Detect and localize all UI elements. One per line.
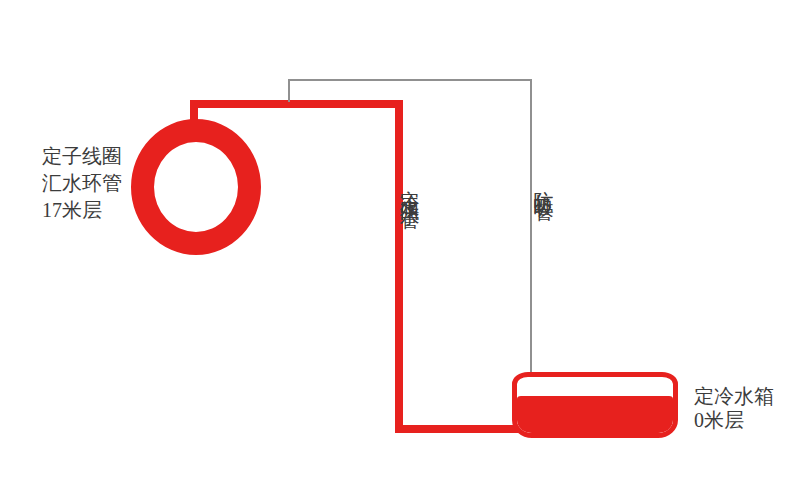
return-pipe-label: 定冷水回水管 [399,174,421,198]
anti-siphon-stub-vertical [288,80,290,102]
cooling-water-diagram: 定子线圈 汇水环管 17米层 定冷水回水管 防虹吸管 定冷水箱 0米层 [0,0,800,500]
anti-siphon-vertical [530,79,532,375]
anti-siphon-horizontal [288,79,532,81]
tank-label-line2: 0米层 [694,408,774,432]
ring-label-line1: 定子线圈 [42,143,122,170]
pipe-top-horizontal [190,100,403,108]
ring-label: 定子线圈 汇水环管 17米层 [42,143,122,224]
water-tank-shape [512,372,678,438]
tank-label: 定冷水箱 0米层 [694,384,774,432]
ring-label-line3: 17米层 [42,197,122,224]
ring-label-line2: 汇水环管 [42,170,122,197]
tank-label-line1: 定冷水箱 [694,384,774,408]
pipe-bottom-horizontal [395,425,520,433]
anti-siphon-label: 防虹吸管 [533,174,555,190]
tank-water-fill [517,396,673,433]
stator-ring-shape [131,119,261,255]
pipe-return-vertical [395,100,403,433]
